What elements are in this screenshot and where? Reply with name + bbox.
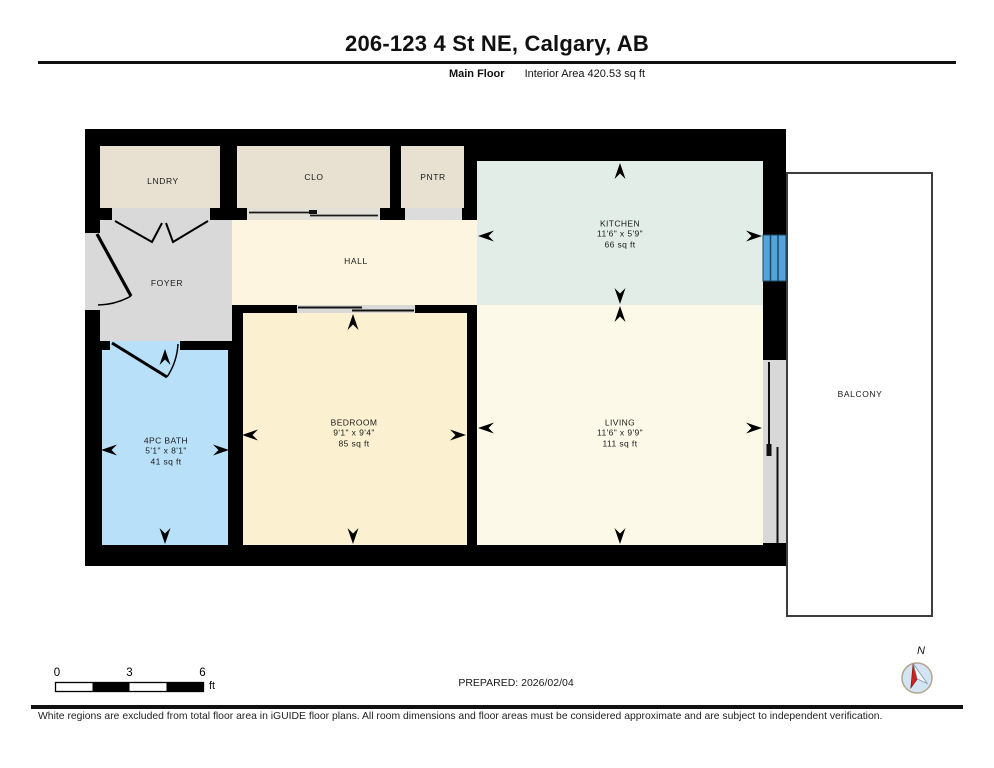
disclaimer-text: White regions are excluded from total fl… bbox=[38, 711, 882, 722]
scale-bar-segment bbox=[93, 683, 130, 692]
room-label-foyer: FOYER bbox=[151, 279, 183, 288]
window-icon bbox=[763, 235, 786, 281]
room-label-clo: CLO bbox=[304, 173, 323, 182]
room-label-kitchen: KITCHEN 11'6" x 5'9" 66 sq ft bbox=[597, 218, 643, 249]
patio-door-overlap bbox=[767, 444, 772, 456]
floorplan-drawing bbox=[0, 0, 994, 768]
room-area: 85 sq ft bbox=[331, 438, 378, 448]
prepared-date-label: PREPARED: 2026/02/04 bbox=[416, 677, 616, 689]
scale-bar bbox=[56, 683, 204, 692]
entry-opening bbox=[85, 233, 100, 310]
sliding-door-overlap bbox=[309, 210, 317, 214]
scale-unit-label: ft bbox=[209, 680, 215, 692]
patio-door-opening bbox=[763, 360, 786, 543]
room-label-pntr: PNTR bbox=[420, 173, 446, 182]
room-name: KITCHEN bbox=[597, 218, 643, 228]
scale-label-3: 3 bbox=[126, 667, 132, 679]
room-label-bedroom: BEDROOM 9'1" x 9'4" 85 sq ft bbox=[331, 417, 378, 448]
room-dims: 5'1" x 8'1" bbox=[144, 446, 188, 456]
room-area: 66 sq ft bbox=[597, 239, 643, 249]
room-label-bath: 4PC BATH 5'1" x 8'1" 41 sq ft bbox=[144, 435, 188, 466]
room-dims: 11'6" x 5'9" bbox=[597, 229, 643, 239]
room-name: 4PC BATH bbox=[144, 435, 188, 445]
lndry-door-opening bbox=[112, 208, 210, 220]
compass-north-label: N bbox=[917, 645, 925, 657]
room-area: 41 sq ft bbox=[144, 456, 188, 466]
compass-icon bbox=[902, 661, 932, 693]
footer-divider bbox=[31, 705, 963, 709]
room-dims: 11'6" x 9'9" bbox=[597, 428, 643, 438]
room-label-lndry: LNDRY bbox=[147, 177, 179, 186]
header-divider bbox=[38, 61, 956, 64]
room-label-balcony: BALCONY bbox=[838, 390, 883, 399]
scale-label-6: 6 bbox=[199, 667, 205, 679]
bedroom-door-opening bbox=[297, 305, 415, 313]
scale-label-0: 0 bbox=[54, 667, 60, 679]
room-name: BEDROOM bbox=[331, 417, 378, 427]
room-dims: 9'1" x 9'4" bbox=[331, 428, 378, 438]
room-name: LIVING bbox=[597, 417, 643, 427]
floorplan-page: 206-123 4 St NE, Calgary, AB Main Floor … bbox=[0, 0, 994, 768]
pntr-opening bbox=[405, 208, 462, 220]
room-area: 111 sq ft bbox=[597, 438, 643, 448]
room-label-hall: HALL bbox=[344, 257, 368, 266]
scale-bar-segment bbox=[167, 683, 204, 692]
room-label-living: LIVING 11'6" x 9'9" 111 sq ft bbox=[597, 417, 643, 448]
